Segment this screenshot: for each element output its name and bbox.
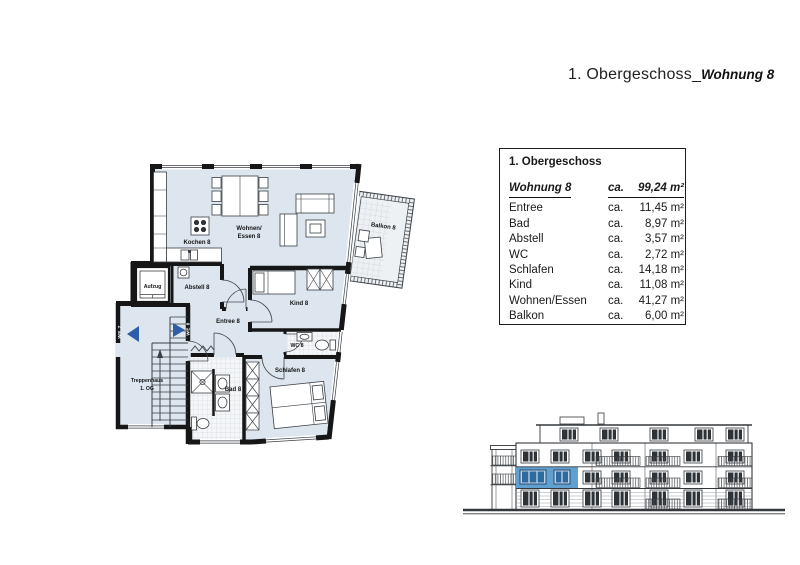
entrance-label-we7: WE 7 xyxy=(117,325,123,338)
table-title: 1. Obergeschoss xyxy=(509,156,685,168)
entrance-label-we8: WE 8 xyxy=(186,322,192,335)
row-area: 14,18 m² xyxy=(629,263,684,278)
row-area: 11,45 m² xyxy=(629,201,684,216)
row-room: Abstell xyxy=(509,232,608,247)
room-label-abstell: Abstell 8 xyxy=(184,285,210,291)
row-room: Schlafen xyxy=(509,263,608,278)
title-floor: 1. Obergeschoss_ xyxy=(568,66,701,83)
room-label-aufzug: Aufzug xyxy=(144,284,162,290)
room-label-kochen: Kochen 8 xyxy=(183,240,211,246)
sofa-2 xyxy=(280,214,297,246)
built-in-wardrobe xyxy=(246,362,259,430)
row-area: 8,97 m² xyxy=(629,217,684,232)
elevation-penthouse xyxy=(536,413,752,443)
row-room: Bad xyxy=(509,217,608,232)
row-room: Kind xyxy=(509,278,608,293)
elevator: Aufzug xyxy=(136,267,169,302)
room-label-schlafen: Schlafen 8 xyxy=(275,368,306,374)
room-label-wohnen-1: Wohnen/ xyxy=(236,226,262,232)
title-unit: Wohnung 8 xyxy=(701,67,774,82)
elevation-left-balconies xyxy=(491,446,518,511)
child-room-furniture xyxy=(253,269,333,294)
table-row: Bad ca.8,97 m² xyxy=(509,217,684,232)
toilet-tank xyxy=(192,417,197,430)
bedroom-furniture xyxy=(270,381,328,428)
row-area: 2,72 m² xyxy=(629,248,684,263)
elevation-main-block xyxy=(516,443,752,510)
room-label-bad: Bad 8 xyxy=(225,387,242,393)
table-row: WC ca.2,72 m² xyxy=(509,248,684,263)
page-title: 1. Obergeschoss_Wohnung 8 xyxy=(568,66,774,84)
room-label-wohnen-2: Essen 8 xyxy=(238,234,261,240)
row-area: 11,08 m² xyxy=(629,278,684,293)
room-label-entree: Entree 8 xyxy=(216,319,240,325)
toilet-icon xyxy=(316,340,329,350)
row-area: 41,27 m² xyxy=(629,294,684,309)
scanned-page: Balkon 8 xyxy=(0,0,800,565)
elevation-ground-line xyxy=(463,510,785,514)
room-area-list: Wohnung 8 ca.99,24 m² Entree ca.11,45 m²… xyxy=(509,181,684,325)
table-row: Balkon ca.6,00 m² xyxy=(509,309,684,324)
toilet-icon-bath xyxy=(197,419,209,429)
room-label-trepp-2: 1. OG xyxy=(140,386,154,392)
highlight-window-1 xyxy=(520,470,546,484)
table-row: Kind ca.11,08 m² xyxy=(509,278,684,293)
row-area: 3,57 m² xyxy=(629,232,684,247)
table-row: Abstell ca.3,57 m² xyxy=(509,232,684,247)
room-label-wc: WC 8 xyxy=(291,343,304,349)
table-row: Schlafen ca.14,18 m² xyxy=(509,263,684,278)
unit-summary-row: Wohnung 8 ca.99,24 m² xyxy=(509,181,684,201)
row-room: WC xyxy=(509,248,608,263)
row-room: Balkon xyxy=(509,309,608,324)
row-room: Wohnen/Essen xyxy=(509,294,608,309)
sofa xyxy=(296,194,334,213)
building-elevation xyxy=(463,413,785,514)
unit-total-area: 99,24 m² xyxy=(629,181,684,196)
row-room: Entree xyxy=(509,201,608,216)
room-label-trepp-1: Treppenhaus xyxy=(131,378,163,384)
stove-icon xyxy=(191,217,209,235)
storage-fixtures xyxy=(178,267,189,278)
area-table: 1. Obergeschoss Wohnung 8 ca.99,24 m² En… xyxy=(499,148,686,325)
table-row: Wohnen/Essen ca.41,27 m² xyxy=(509,294,684,309)
highlight-window-2 xyxy=(554,470,570,484)
floor-plan: Balkon 8 xyxy=(116,164,414,444)
unit-label: Wohnung 8 xyxy=(509,181,571,198)
sink-basin xyxy=(181,250,189,260)
room-label-kind: Kind 8 xyxy=(290,301,309,307)
row-area: 6,00 m² xyxy=(629,309,684,324)
table-row: Entree ca.11,45 m² xyxy=(509,201,684,216)
